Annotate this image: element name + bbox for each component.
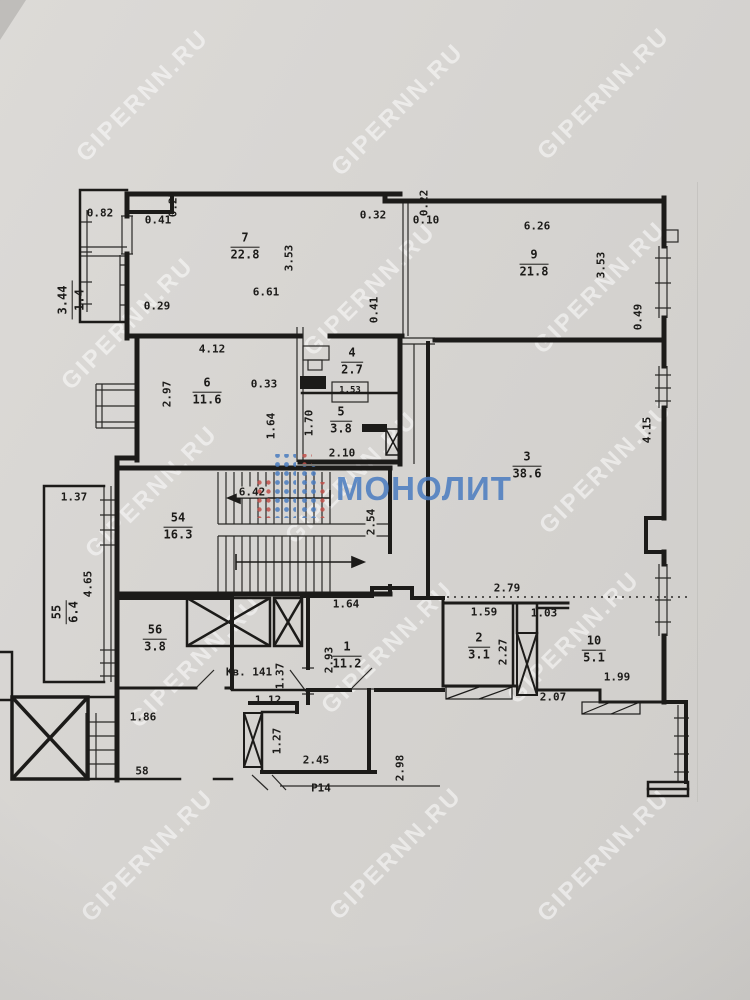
dimension-label: Кв. 141 [226, 667, 272, 678]
room-label-3.44: 3.441.4 [57, 281, 88, 320]
room-area: 6.4 [67, 600, 82, 624]
room-area: 11.6 [193, 393, 222, 408]
dimension-label: 1.12 [255, 695, 282, 706]
room-label-10: 105.1 [582, 635, 606, 666]
dimension-label: 0.32 [360, 210, 387, 221]
room-label-54: 5416.3 [164, 512, 193, 543]
room-area: 1.4 [73, 281, 88, 320]
dimension-label: 1.99 [604, 672, 631, 683]
dimension-label: 1.53 [339, 387, 361, 396]
room-area: 21.8 [520, 265, 549, 280]
dimension-label: 4.15 [642, 417, 653, 444]
dimension-label: 0.41 [369, 297, 380, 324]
room-number: 10 [582, 635, 606, 651]
dimension-label: 1.03 [531, 608, 558, 619]
room-label-56: 563.8 [143, 624, 167, 655]
dimension-label: 3.53 [596, 252, 607, 279]
room-number: 54 [164, 512, 193, 528]
stair-arrows [228, 490, 364, 570]
scanned-floorplan-photo: GIPERNN.RUGIPERNN.RUGIPERNN.RUGIPERNN.RU… [0, 0, 750, 1000]
room-label-55: 556.4 [51, 600, 82, 624]
room-number: 3 [513, 451, 542, 467]
dimension-label: 2.79 [494, 583, 521, 594]
room-number: 5 [330, 406, 352, 422]
dimension-label: 1.64 [333, 599, 360, 610]
dimension-label: 0.82 [87, 208, 114, 219]
dimension-label: 1.59 [471, 607, 498, 618]
room-number: 2 [468, 632, 490, 648]
room-number: 56 [143, 624, 167, 640]
room-label-4: 42.7 [341, 347, 363, 378]
dimension-label: 6.61 [253, 287, 280, 298]
room-area: 3.8 [330, 422, 352, 437]
room-area: 22.8 [231, 248, 260, 263]
room-area: 2.7 [341, 363, 363, 378]
dimension-label: 2.98 [395, 755, 406, 782]
room-label-7: 722.8 [231, 232, 260, 263]
room-label-1: 111.2 [333, 641, 362, 672]
dimension-label: 3.53 [284, 245, 295, 272]
dimension-label: 6.26 [524, 221, 551, 232]
room-area: 38.6 [513, 467, 542, 482]
room-label-5: 53.8 [330, 406, 352, 437]
dimension-label: 1.86 [130, 712, 157, 723]
dimension-label: 2.45 [303, 755, 330, 766]
dimension-label: 2.97 [162, 381, 173, 408]
dimension-label: 1.37 [61, 492, 88, 503]
room-number: 6 [193, 377, 222, 393]
thick-walls [117, 194, 686, 782]
dimension-label: Р14 [311, 783, 331, 794]
dimension-label: 2.54 [366, 507, 377, 538]
room-area: 11.2 [333, 657, 362, 672]
dimension-label: 6.42 [237, 487, 268, 498]
dimension-label: 2.10 [329, 448, 356, 459]
room-area: 5.1 [582, 651, 606, 666]
floorplan-walls [0, 0, 750, 1000]
room-label-9: 921.8 [520, 249, 549, 280]
dimension-label: 1.27 [272, 728, 283, 755]
room-number: 7 [231, 232, 260, 248]
dimension-label: 2.07 [540, 692, 567, 703]
dimension-label: 0.27 [168, 191, 179, 218]
room-area: 3.1 [468, 648, 490, 663]
dimension-label: 0.22 [419, 190, 430, 217]
dimension-label: 0.33 [251, 379, 278, 390]
room-number: 1 [333, 641, 362, 657]
room-number: 9 [520, 249, 549, 265]
room-number: 55 [51, 600, 67, 624]
room-label-6: 611.6 [193, 377, 222, 408]
room-area: 3.8 [143, 640, 167, 655]
dimension-label: 1.70 [304, 410, 315, 437]
dimension-label: 0.10 [413, 215, 440, 226]
room-label-3: 338.6 [513, 451, 542, 482]
medium-walls [0, 190, 688, 796]
dimension-label: 1.37 [275, 663, 286, 690]
dimension-label: 0.49 [633, 304, 644, 331]
dimension-label: 0.29 [144, 301, 171, 312]
dimension-label: 58 [135, 766, 148, 777]
dimension-label: 4.65 [83, 571, 94, 598]
room-number: 4 [341, 347, 363, 363]
room-label-2: 23.1 [468, 632, 490, 663]
dimension-label: 2.27 [498, 639, 509, 666]
room-number: 3.44 [57, 281, 73, 320]
room-area: 16.3 [164, 528, 193, 543]
dimension-label: 4.12 [199, 344, 226, 355]
dimension-label: 1.64 [266, 413, 277, 440]
